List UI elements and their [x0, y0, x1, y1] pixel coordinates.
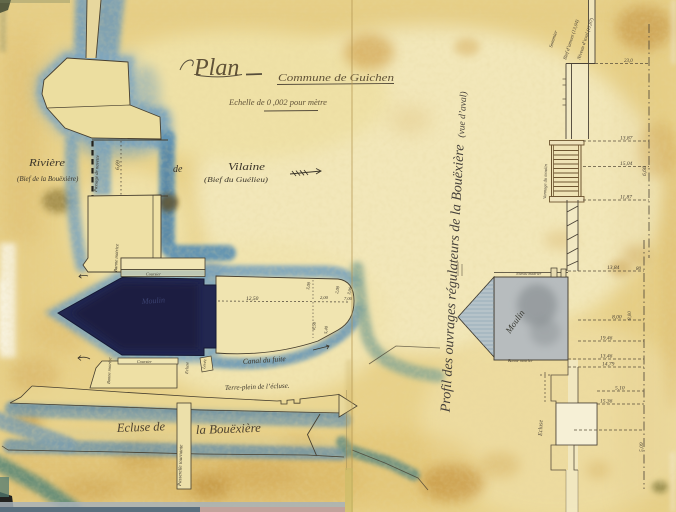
- svg-text:Niveau madrier: Niveau madrier: [515, 271, 542, 276]
- svg-text:Rivière: Rivière: [28, 158, 66, 169]
- svg-text:(Bief de la Bouëxière): (Bief de la Bouëxière): [17, 175, 79, 183]
- svg-text:Coursier: Coursier: [137, 359, 152, 364]
- svg-text:19,46: 19,46: [600, 335, 613, 342]
- svg-text:5,09: 5,09: [639, 442, 645, 452]
- svg-text:13,46: 13,46: [600, 353, 613, 360]
- svg-text:13,87: 13,87: [620, 136, 633, 142]
- svg-text:Ecluse de: Ecluse de: [116, 419, 166, 435]
- svg-text:11,87: 11,87: [620, 195, 632, 201]
- svg-text:12,50: 12,50: [246, 296, 259, 302]
- svg-text:5,10: 5,10: [615, 386, 625, 392]
- svg-text:Commune de Guichen: Commune de Guichen: [278, 72, 395, 84]
- svg-text:Coursier: Coursier: [146, 272, 161, 277]
- svg-text:Vilaine: Vilaine: [228, 162, 265, 173]
- svg-text:Ecluse: Ecluse: [538, 420, 545, 438]
- svg-text:13,84: 13,84: [607, 264, 620, 271]
- svg-text:15,36: 15,36: [600, 399, 613, 405]
- svg-text:de: de: [173, 164, 183, 175]
- svg-text:Ecluse: Ecluse: [184, 362, 190, 375]
- svg-text:Moulin: Moulin: [141, 295, 166, 306]
- svg-text:8,00: 8,00: [612, 315, 622, 321]
- svg-text:80: 80: [636, 267, 642, 272]
- svg-text:14,79: 14,79: [602, 361, 615, 368]
- svg-text:23,0: 23,0: [624, 59, 633, 64]
- svg-text:Echelle de 0 ,002 pour mètre: Echelle de 0 ,002 pour mètre: [228, 97, 327, 107]
- svg-text:la Bouëxière: la Bouëxière: [196, 421, 262, 437]
- svg-text:8,00: 8,00: [628, 311, 633, 320]
- svg-text:(Bief du Guélieu): (Bief du Guélieu): [204, 176, 269, 184]
- svg-text:15,04: 15,04: [620, 160, 633, 167]
- svg-text:6,69: 6,69: [115, 160, 122, 170]
- svg-text:6,66: 6,66: [642, 166, 648, 176]
- svg-text:Banne motrice: Banne motrice: [508, 358, 533, 363]
